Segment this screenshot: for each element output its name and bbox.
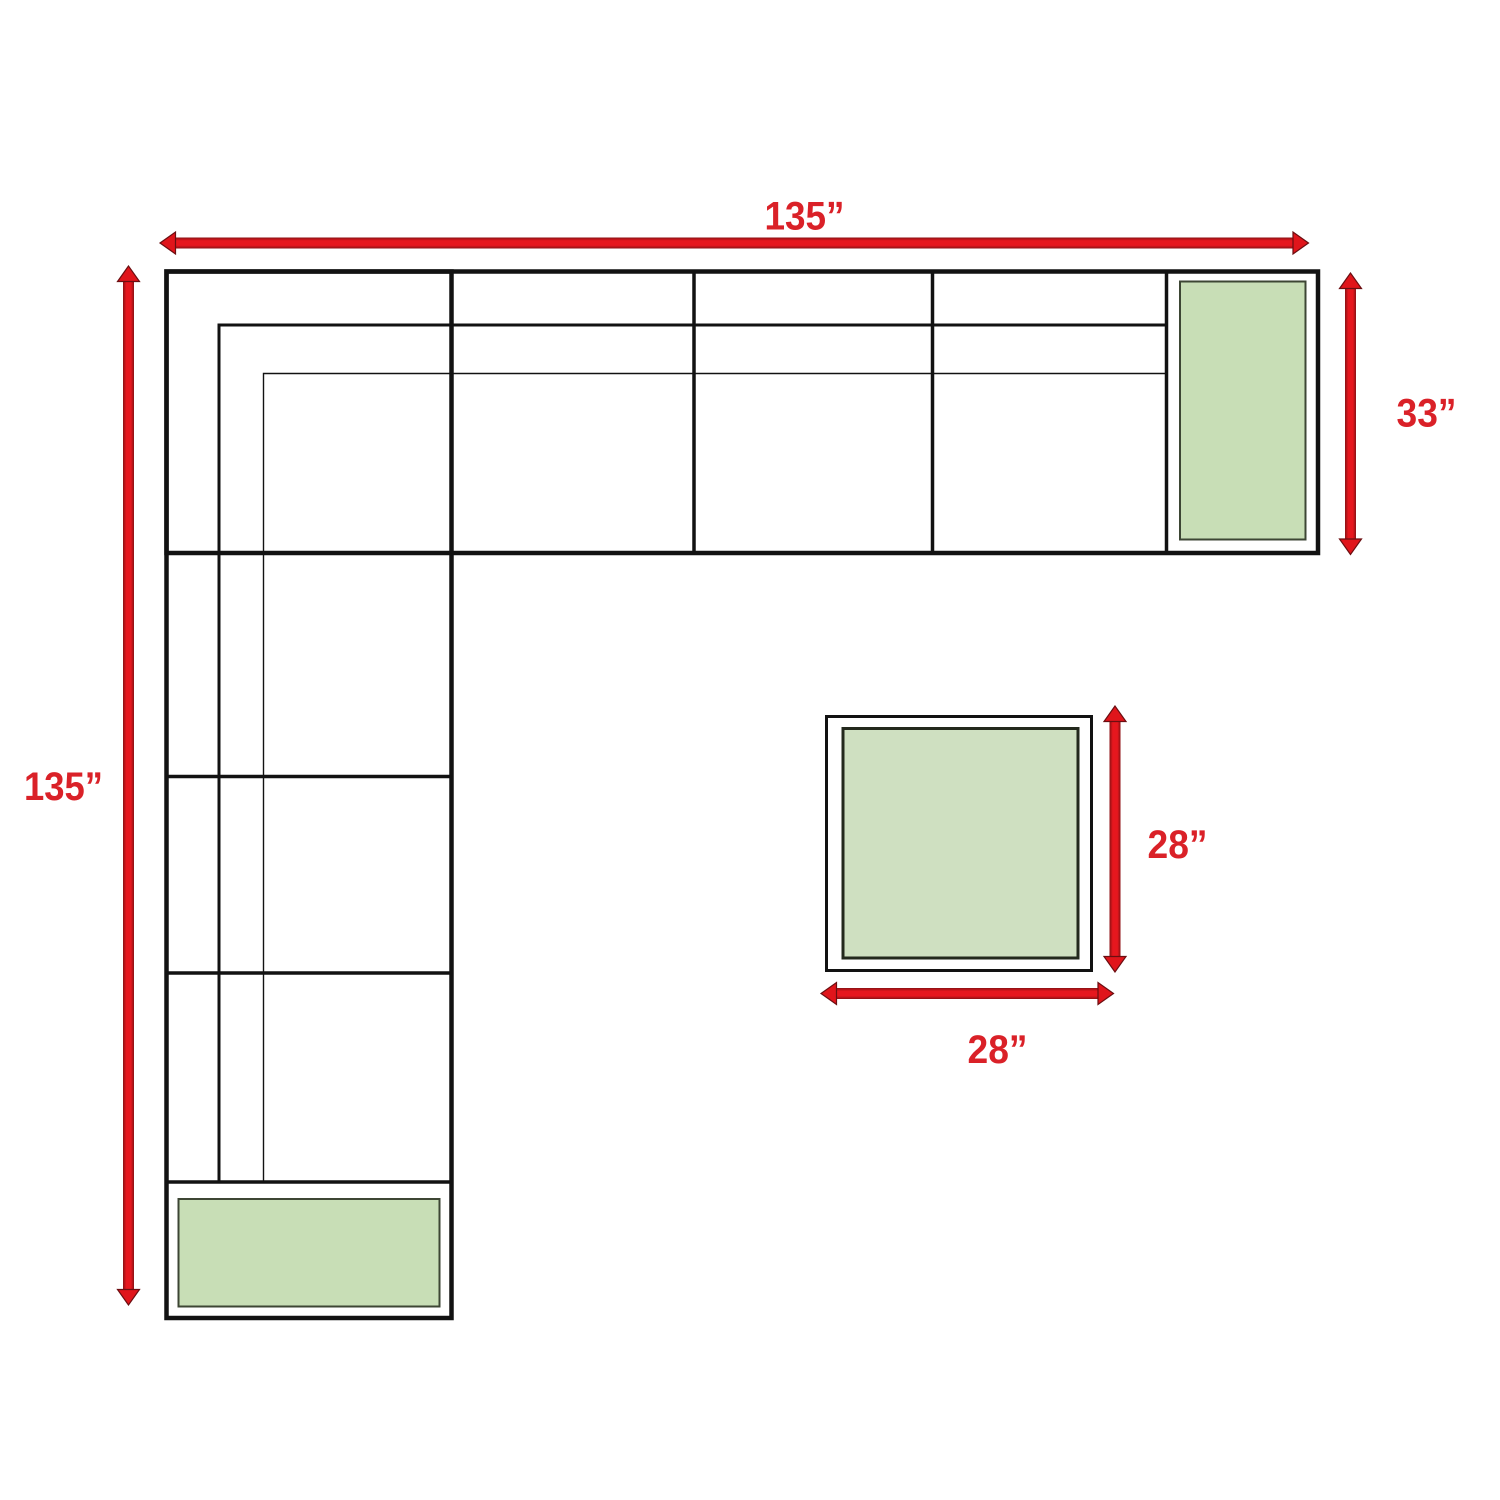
svg-text:135”: 135”: [24, 765, 103, 809]
svg-text:28”: 28”: [968, 1028, 1028, 1072]
svg-text:33”: 33”: [1397, 392, 1457, 436]
svg-text:28”: 28”: [1148, 823, 1208, 867]
svg-text:135”: 135”: [765, 195, 845, 239]
